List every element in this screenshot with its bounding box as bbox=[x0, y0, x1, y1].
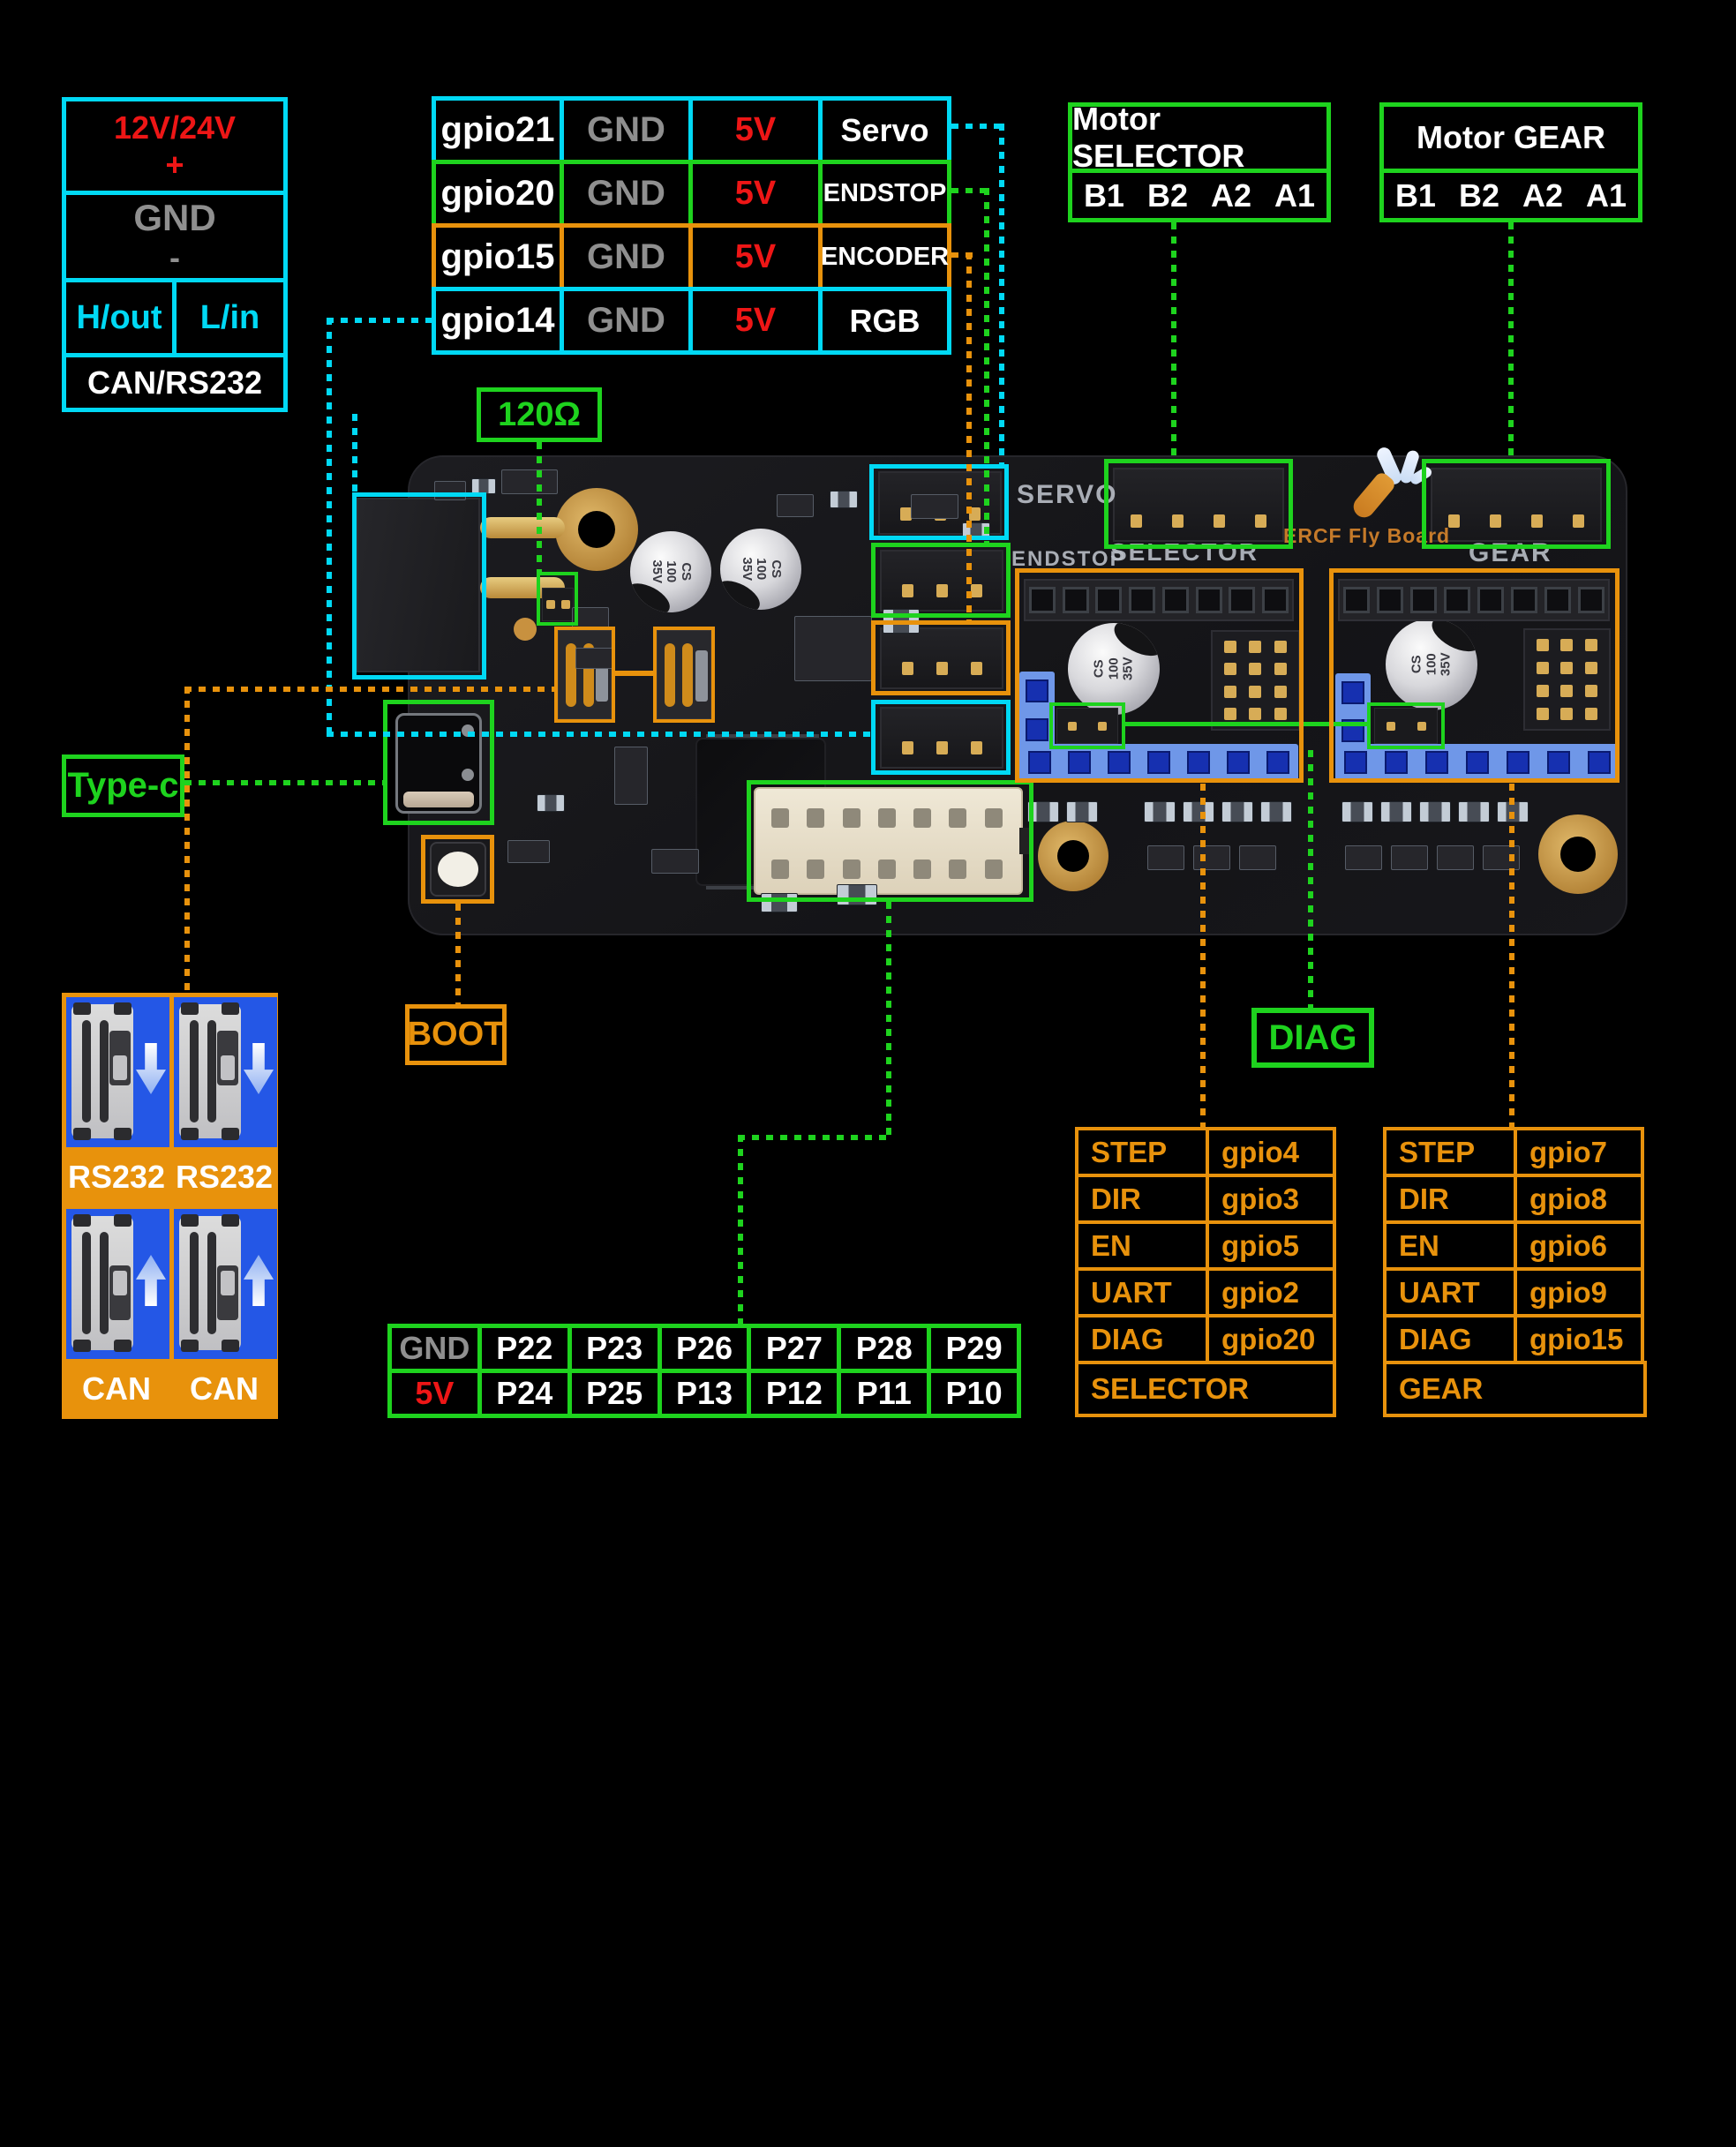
ic-chip bbox=[1345, 845, 1382, 870]
encoder-highlight bbox=[871, 620, 1011, 695]
switch-link-line bbox=[615, 671, 655, 676]
ic-chip bbox=[501, 469, 558, 494]
gnd-label: GND bbox=[133, 197, 215, 239]
dip-switch-graphic bbox=[179, 1216, 241, 1350]
solder-pad bbox=[514, 618, 537, 641]
can-label: CAN bbox=[63, 1370, 170, 1408]
termination-highlight bbox=[537, 572, 578, 626]
arrow-up-icon bbox=[136, 1255, 166, 1306]
power-ground-cell: GND - bbox=[62, 191, 288, 282]
gear-signal-row: EN gpio6 bbox=[1383, 1220, 1644, 1271]
smd-component bbox=[1458, 801, 1490, 822]
gpio-row-servo: gpio21 GND 5V Servo bbox=[432, 96, 965, 164]
carrot-logo bbox=[1338, 447, 1435, 524]
ic-chip bbox=[1391, 845, 1428, 870]
gpio-row-rgb: gpio14 GND 5V RGB bbox=[432, 287, 965, 355]
can-label: CAN bbox=[170, 1370, 278, 1408]
leader-line bbox=[984, 188, 989, 546]
motor-selector-title: Motor SELECTOR bbox=[1068, 102, 1331, 173]
leader-line bbox=[184, 780, 386, 785]
boot-callout: BOOT bbox=[405, 1004, 507, 1065]
ic-chip bbox=[777, 494, 814, 517]
arrow-up-icon bbox=[244, 1255, 274, 1306]
leader-line bbox=[966, 252, 972, 624]
rs232-switch-diagram bbox=[174, 997, 277, 1147]
leader-line bbox=[327, 732, 872, 737]
can-switch-diagram bbox=[174, 1209, 277, 1359]
leader-line bbox=[184, 687, 555, 692]
diag-jumper-highlight bbox=[1049, 702, 1125, 749]
ic-chip bbox=[1437, 845, 1474, 870]
smd-component bbox=[1419, 801, 1451, 822]
aux-connector-highlight bbox=[747, 780, 1033, 902]
smd-component bbox=[537, 794, 565, 812]
leader-line bbox=[738, 1135, 743, 1325]
leader-line bbox=[999, 124, 1004, 468]
voltage-label: 12V/24V bbox=[114, 109, 236, 146]
ic-chip bbox=[651, 849, 699, 874]
gear-signal-row: DIAG gpio15 bbox=[1383, 1314, 1644, 1364]
gpio-row-encoder: gpio15 GND 5V ENCODER bbox=[432, 223, 965, 291]
motor-gear-pins: B1 B2 A2 A1 bbox=[1379, 169, 1642, 222]
leader-line bbox=[886, 902, 891, 1140]
selector-table-footer: SELECTOR bbox=[1075, 1361, 1336, 1417]
selector-motor-highlight bbox=[1104, 459, 1293, 549]
motor-gear-title: Motor GEAR bbox=[1379, 102, 1642, 173]
smd-component bbox=[1144, 801, 1176, 822]
leader-line bbox=[455, 904, 461, 1006]
ic-chip bbox=[794, 616, 872, 681]
gear-table-footer: GEAR bbox=[1383, 1361, 1647, 1417]
power-voltage-cell: 12V/24V + bbox=[62, 97, 288, 195]
smd-component bbox=[1183, 801, 1214, 822]
gear-signal-row: STEP gpio7 bbox=[1383, 1127, 1644, 1177]
smd-component bbox=[1066, 801, 1098, 822]
capacitor: CS10035V bbox=[630, 531, 711, 612]
smd-component bbox=[1341, 801, 1373, 822]
ic-chip bbox=[614, 747, 648, 805]
mounting-hole bbox=[1538, 815, 1618, 894]
aux-pin-row-2: 5V P24 P25 P13 P12 P11 P10 bbox=[387, 1369, 1021, 1418]
ic-chip bbox=[507, 840, 550, 863]
selector-driver-highlight bbox=[1015, 568, 1304, 783]
switch-highlight bbox=[653, 627, 715, 723]
minus-label: - bbox=[169, 239, 180, 276]
selector-signal-row: EN gpio5 bbox=[1075, 1220, 1336, 1271]
switch-actuator bbox=[109, 1031, 131, 1085]
aux-pin-row-1: GND P22 P23 P26 P27 P28 P29 bbox=[387, 1324, 1021, 1373]
endstop-highlight bbox=[871, 543, 1011, 618]
comm-mode-panel: RS232 RS232 CAN CAN bbox=[62, 993, 278, 1419]
ic-chip bbox=[1239, 845, 1276, 870]
leader-line bbox=[327, 318, 332, 737]
gear-driver-highlight bbox=[1329, 568, 1620, 783]
gear-motor-highlight bbox=[1422, 459, 1611, 549]
ic-chip bbox=[1193, 845, 1230, 870]
dip-switch-graphic bbox=[71, 1216, 133, 1350]
dip-switch-graphic bbox=[179, 1004, 241, 1138]
pinout-diagram: CS10035V CS10035V CS10035V CS10035V bbox=[0, 0, 1736, 2147]
smd-component bbox=[1260, 801, 1292, 822]
termination-callout: 120Ω bbox=[477, 387, 602, 442]
switch-actuator bbox=[217, 1031, 238, 1085]
selector-signal-row: UART gpio2 bbox=[1075, 1267, 1336, 1317]
capacitor: CS10035V bbox=[720, 529, 801, 610]
leader-line bbox=[184, 687, 190, 994]
plus-label: + bbox=[165, 146, 184, 184]
motor-selector-pins: B1 B2 A2 A1 bbox=[1068, 169, 1331, 222]
leader-line bbox=[738, 1135, 891, 1140]
mounting-hole bbox=[555, 488, 638, 571]
leader-line bbox=[1200, 784, 1206, 1128]
arrow-down-icon bbox=[136, 1043, 166, 1094]
leader-line bbox=[327, 318, 432, 323]
power-connector-highlight bbox=[352, 492, 486, 679]
smd-component bbox=[830, 491, 858, 508]
diag-callout: DIAG bbox=[1251, 1008, 1374, 1068]
smd-component bbox=[1380, 801, 1412, 822]
leader-line bbox=[352, 414, 357, 495]
mounting-hole bbox=[1038, 821, 1108, 891]
arrow-down-icon bbox=[244, 1043, 274, 1094]
can-low-cell: L/in bbox=[172, 278, 288, 357]
gear-signal-row: UART gpio9 bbox=[1383, 1267, 1644, 1317]
leader-line bbox=[1509, 784, 1514, 1128]
leader-line bbox=[1308, 750, 1313, 1009]
leader-line bbox=[1171, 222, 1176, 462]
selector-signal-row: STEP gpio4 bbox=[1075, 1127, 1336, 1177]
typec-callout: Type-c bbox=[62, 754, 184, 817]
selector-signal-row: DIR gpio3 bbox=[1075, 1174, 1336, 1224]
selector-signal-row: DIAG gpio20 bbox=[1075, 1314, 1336, 1364]
rs232-label: RS232 bbox=[63, 1159, 170, 1196]
leader-line bbox=[1508, 222, 1514, 462]
switch-actuator bbox=[217, 1265, 238, 1320]
switch-actuator bbox=[109, 1265, 131, 1320]
protocol-cell: CAN/RS232 bbox=[62, 353, 288, 412]
typec-highlight bbox=[383, 700, 494, 825]
rs232-label: RS232 bbox=[170, 1159, 278, 1196]
rs232-switch-diagram bbox=[66, 997, 169, 1147]
can-switch-diagram bbox=[66, 1209, 169, 1359]
boot-highlight bbox=[421, 835, 494, 904]
gpio-row-endstop: gpio20 GND 5V ENDSTOP bbox=[432, 160, 965, 228]
silkscreen-servo: SERVO bbox=[1017, 480, 1118, 510]
gear-signal-row: DIR gpio8 bbox=[1383, 1174, 1644, 1224]
diag-jumper-highlight bbox=[1367, 702, 1445, 749]
ic-chip bbox=[1147, 845, 1184, 870]
power-pin bbox=[480, 517, 565, 538]
can-high-cell: H/out bbox=[62, 278, 177, 357]
rgb-highlight bbox=[871, 700, 1011, 775]
dip-switch-graphic bbox=[71, 1004, 133, 1138]
leader-line bbox=[537, 442, 542, 574]
smd-component bbox=[1221, 801, 1253, 822]
switch-highlight bbox=[554, 627, 615, 723]
